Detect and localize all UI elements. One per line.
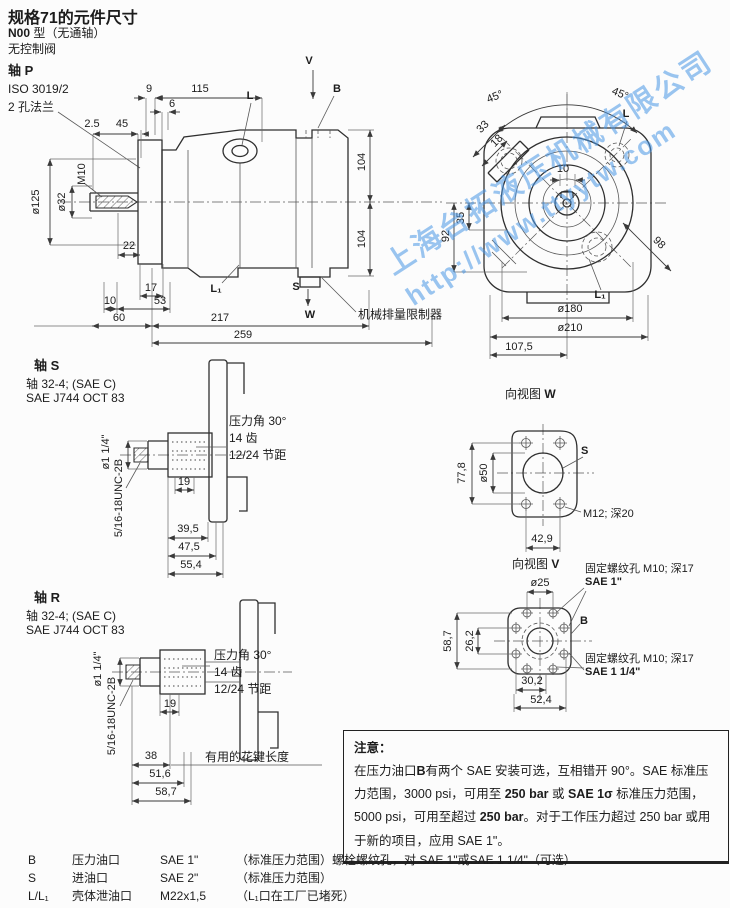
port-label-w: W: [305, 309, 315, 321]
view-w-port-s: S: [581, 445, 588, 457]
port-row-remark: （L₁口在工厂已堵死）: [236, 888, 726, 905]
note-seg: 在压力油口: [354, 764, 417, 778]
shaft-r-heading: 轴 R: [34, 587, 60, 606]
note-box: 注意： 在压力油口B有两个 SAE 安装可选，互相错开 90°。SAE 标准压力…: [343, 730, 729, 864]
dim-22: 22: [123, 240, 135, 252]
dim-2-5: 2.5: [84, 118, 99, 130]
dim-217: 217: [211, 312, 229, 324]
flange-standard: ISO 3019/2: [8, 82, 69, 96]
dim-60: 60: [113, 312, 125, 324]
fixing-hole-note-bottom: 固定螺纹孔 M10; 深17: [585, 650, 694, 666]
port-row-name: 压力油口: [72, 852, 152, 869]
dim-107-5: 107,5: [505, 341, 533, 353]
dim-dia125: ø125: [30, 189, 42, 214]
dim-v-30-2: 30,2: [521, 675, 542, 687]
dim-v-dia25: ø25: [531, 577, 550, 589]
view-w-title-prefix: 向视图: [505, 387, 544, 401]
note-bold-sae1: SAE 1σ: [568, 787, 613, 801]
catalog-page: 上海台拓液压机械有限公司 http://www.ttyytw.com 规格71的…: [0, 0, 730, 908]
shaft-r-thread: 5/16-18UNC-2B: [106, 677, 118, 755]
dim-w-77-8: 77,8: [456, 462, 468, 483]
subtitle: 无控制阀: [8, 40, 56, 57]
shaft-s-heading: 轴 S: [34, 355, 59, 374]
dim-115: 115: [191, 83, 209, 95]
limiter-note: 机械排量限制器: [358, 306, 442, 323]
dim-r-19: 19: [164, 698, 176, 710]
spline-length-note: 有用的花键长度: [205, 748, 289, 765]
shaft-s-pressure-angle: 压力角 30°: [229, 412, 286, 429]
port-row-code: B: [28, 852, 64, 869]
dim-17: 17: [145, 282, 157, 294]
model-code: N00: [8, 26, 30, 40]
dim-92: 92: [440, 230, 452, 242]
dim-6: 6: [169, 98, 175, 110]
sae-1-1-4-label: SAE 1 1/4": [585, 666, 640, 678]
shaft-r-pressure-angle: 压力角 30°: [214, 646, 271, 663]
dim-104-bottom: 104: [356, 230, 368, 248]
sae-1-label: SAE 1": [585, 576, 622, 588]
port-label-s: S: [292, 281, 299, 293]
note-body: 在压力油口B有两个 SAE 安装可选，互相错开 90°。SAE 标准压力范围，3…: [354, 760, 718, 853]
port-row-code: L/L₁: [28, 888, 64, 905]
note-bold-250bar-2: 250 bar: [480, 810, 524, 824]
view-v-letter: V: [551, 557, 559, 571]
dim-10: 10: [104, 295, 116, 307]
port-row-size: SAE 1": [160, 852, 228, 869]
port-row-name: 壳体泄油口: [72, 888, 152, 905]
port-row-size: M22x1,5: [160, 888, 228, 905]
note-bold-250bar-1: 250 bar: [505, 787, 549, 801]
port-row-remark: （标准压力范围）: [236, 870, 726, 887]
port-label-v: V: [305, 55, 312, 67]
shaft-r-drawing: [112, 600, 322, 805]
dim-104-top: 104: [356, 153, 368, 171]
port-row-name: 进油口: [72, 870, 152, 887]
dim-v-26-2: 26,2: [464, 630, 476, 651]
port-label-b: B: [333, 83, 341, 95]
shaft-s-spec2: SAE J744 OCT 83: [26, 391, 125, 405]
shaft-s-teeth: 14 齿: [229, 429, 258, 446]
view-w-title: 向视图 W: [505, 385, 556, 402]
view-v-port-b: B: [580, 615, 588, 627]
dim-w-42-9: 42,9: [531, 533, 552, 545]
port-row-remark: （标准压力范围）螺栓螺纹孔，对 SAE 1"或SAE 1 1/4"（可选）: [236, 852, 726, 869]
dim-s-47-5: 47,5: [178, 541, 199, 553]
dim-9: 9: [146, 83, 152, 95]
shaft-s-thread: 5/16-18UNC-2B: [113, 459, 125, 537]
port-label-l1: L₁: [210, 283, 221, 295]
dim-259: 259: [234, 329, 252, 341]
dim-s-55-4: 55,4: [180, 559, 201, 571]
view-v-drawing: [457, 588, 592, 712]
shaft-p-heading: 轴 P: [8, 60, 33, 79]
fixing-hole-note-top: 固定螺纹孔 M10; 深17: [585, 560, 694, 576]
shaft-r-dia: ø1 1/4": [92, 651, 104, 686]
dim-dia180: ø180: [557, 303, 582, 315]
dim-53: 53: [154, 295, 166, 307]
dim-s-19: 19: [178, 476, 190, 488]
note-seg: 或: [549, 787, 568, 801]
dim-dia32: ø32: [56, 193, 68, 212]
dim-v-58-7: 58,7: [442, 630, 454, 651]
port-label-l: L: [247, 90, 254, 102]
dim-10-keyway: 10: [557, 163, 569, 175]
shaft-r-spec1: 轴 32-4; (SAE C): [26, 607, 116, 624]
flange-type: 2 孔法兰: [8, 98, 54, 115]
dim-dia210: ø210: [557, 322, 582, 334]
view-v-title-prefix: 向视图: [512, 557, 551, 571]
ports-legend: B 压力油口 SAE 1" （标准压力范围）螺栓螺纹孔，对 SAE 1"或SAE…: [28, 852, 726, 905]
view-v-title: 向视图 V: [512, 555, 559, 572]
dim-35: 35: [455, 212, 467, 224]
dim-r-51-6: 51,6: [149, 768, 170, 780]
dim-w-dia50: ø50: [478, 464, 490, 483]
dim-v-52-4: 52,4: [530, 694, 551, 706]
model-line: N00 型（无通轴）: [8, 24, 105, 41]
model-rest: 型（无通轴）: [30, 26, 105, 40]
rear-port-l: L: [623, 108, 630, 120]
dim-r-38: 38: [145, 750, 157, 762]
shaft-s-dia: ø1 1/4": [100, 434, 112, 469]
shaft-r-teeth: 14 齿: [214, 663, 243, 680]
dim-45: 45: [116, 118, 128, 130]
rear-port-l1: L₁: [594, 289, 605, 301]
view-w-letter: W: [544, 387, 555, 401]
note-bold-b: B: [417, 764, 426, 778]
view-w-hole-note: M12; 深20: [583, 505, 634, 521]
note-title: 注意：: [354, 737, 718, 760]
dim-m10: M10: [76, 163, 88, 184]
shaft-s-pitch: 12/24 节距: [229, 446, 286, 463]
port-row-code: S: [28, 870, 64, 887]
port-row-size: SAE 2": [160, 870, 228, 887]
dim-r-58-7: 58,7: [155, 786, 176, 798]
shaft-s-spec1: 轴 32-4; (SAE C): [26, 375, 116, 392]
shaft-r-spec2: SAE J744 OCT 83: [26, 623, 125, 637]
dim-s-39-5: 39,5: [177, 523, 198, 535]
shaft-r-pitch: 12/24 节距: [214, 680, 271, 697]
